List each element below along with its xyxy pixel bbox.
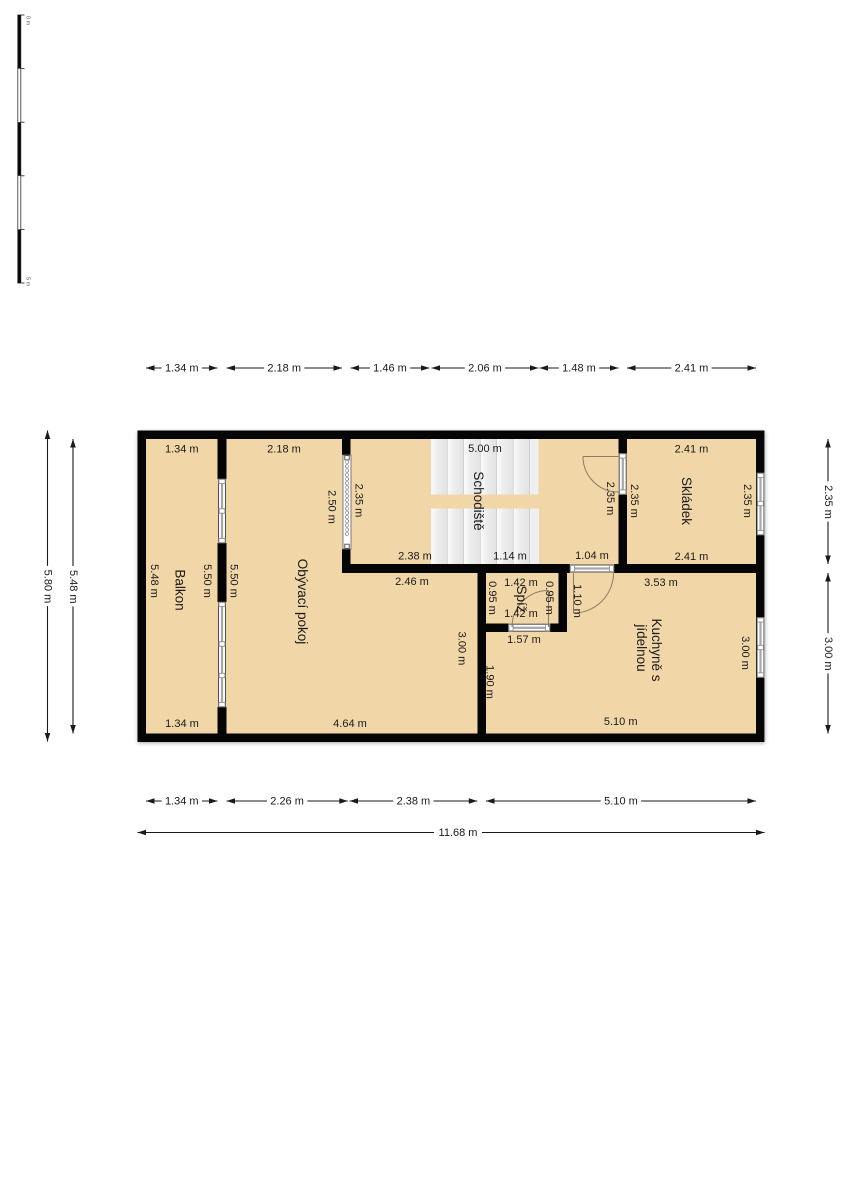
svg-text:2.35 m: 2.35 m [741,484,753,518]
svg-text:0.95 m: 0.95 m [543,581,555,615]
svg-text:jídelnou: jídelnou [634,623,649,671]
svg-text:2.41 m: 2.41 m [675,551,709,563]
svg-text:5.48 m: 5.48 m [148,564,160,598]
svg-text:2.46 m: 2.46 m [395,576,429,588]
svg-text:Spíž: Spíž [514,585,529,612]
svg-text:1.48 m: 1.48 m [562,363,596,375]
svg-text:2.26 m: 2.26 m [270,796,304,808]
svg-text:1.46 m: 1.46 m [373,363,407,375]
svg-text:2.18 m: 2.18 m [267,363,301,375]
svg-text:2.41 m: 2.41 m [675,444,709,456]
svg-text:3.53 m: 3.53 m [644,577,678,589]
svg-text:5.10 m: 5.10 m [604,796,638,808]
svg-text:0.95 m: 0.95 m [486,581,498,615]
svg-text:5.00 m: 5.00 m [468,443,502,455]
svg-text:Balkon: Balkon [173,569,188,610]
svg-text:5.10 m: 5.10 m [604,716,638,728]
svg-text:1.10 m: 1.10 m [571,584,583,618]
svg-text:2.35 m: 2.35 m [604,482,616,516]
svg-text:Schodiště: Schodiště [471,471,486,530]
svg-text:1.57 m: 1.57 m [507,634,541,646]
svg-text:11.68 m: 11.68 m [439,827,478,839]
svg-text:2.35 m: 2.35 m [628,484,640,518]
svg-text:5 m: 5 m [25,277,31,287]
svg-text:Skládek: Skládek [679,477,694,525]
svg-text:4.64 m: 4.64 m [333,718,367,730]
svg-text:1.34 m: 1.34 m [165,363,199,375]
svg-text:1.34 m: 1.34 m [165,718,199,730]
svg-text:1.14 m: 1.14 m [493,551,527,563]
svg-text:2.41 m: 2.41 m [675,363,709,375]
svg-text:1.04 m: 1.04 m [575,550,609,562]
svg-text:3.00 m: 3.00 m [822,637,834,671]
svg-text:5.50 m: 5.50 m [228,564,240,598]
svg-text:3.00 m: 3.00 m [456,632,468,666]
svg-text:5.48 m: 5.48 m [67,570,79,604]
svg-text:2.35 m: 2.35 m [353,484,365,518]
svg-text:5.80 m: 5.80 m [42,570,54,604]
svg-text:1.34 m: 1.34 m [165,796,199,808]
svg-text:Obývací pokoj: Obývací pokoj [295,559,310,645]
svg-text:2.50 m: 2.50 m [326,490,338,524]
svg-text:2.18 m: 2.18 m [267,444,301,456]
svg-text:0 m: 0 m [25,16,31,26]
svg-text:5.50 m: 5.50 m [201,564,213,598]
svg-text:1.34 m: 1.34 m [165,444,199,456]
svg-text:3.00 m: 3.00 m [739,636,751,670]
svg-text:Kuchyně s: Kuchyně s [649,618,664,681]
svg-text:2.38 m: 2.38 m [398,551,432,563]
svg-text:2.35 m: 2.35 m [822,485,834,519]
svg-text:1.90 m: 1.90 m [484,665,496,699]
svg-text:2.06 m: 2.06 m [468,363,502,375]
svg-text:2.38 m: 2.38 m [397,796,431,808]
